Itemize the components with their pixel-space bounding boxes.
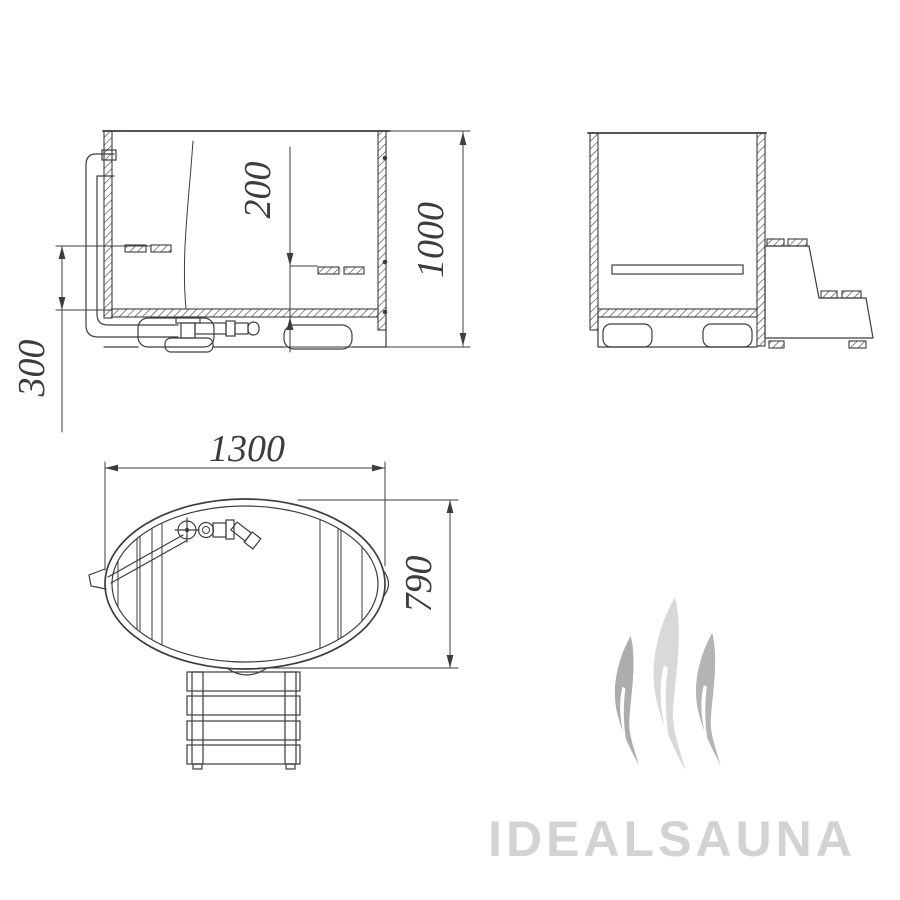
fastener-dot <box>383 156 388 161</box>
base-skirt <box>104 317 386 349</box>
right-wall-section <box>378 131 386 330</box>
dim-seat-height: 300 <box>11 246 150 432</box>
tub-outer-rim <box>105 499 385 669</box>
dimension-label-1000: 1000 <box>410 202 452 278</box>
faucet-assembly <box>108 518 261 583</box>
bench-slats <box>118 500 362 668</box>
dim-seat-depth: 200 <box>237 147 317 352</box>
steps-profile <box>765 239 873 348</box>
dim-overall-width: 790 <box>258 500 458 668</box>
dimension-label-790: 790 <box>398 556 440 613</box>
seat-bracket <box>318 267 339 274</box>
bench-bar <box>612 265 743 274</box>
seat-bracket <box>344 267 364 274</box>
seat-bracket <box>151 245 171 252</box>
sauna-tub-drawing: 300 200 1000 <box>0 0 900 900</box>
brand-text: IDEALSAUNA <box>488 811 856 867</box>
base-skirt <box>598 317 757 347</box>
plan-view <box>89 499 389 769</box>
fastener-dot <box>383 260 388 265</box>
flame-icon-middle <box>654 597 686 771</box>
flame-icon-left <box>615 636 639 765</box>
end-view <box>588 133 873 348</box>
watermark: IDEALSAUNA <box>488 597 856 867</box>
floor-section <box>598 309 757 317</box>
fastener-dot <box>383 310 388 315</box>
dimension-label-200: 200 <box>237 162 279 219</box>
steps-plan <box>187 672 300 769</box>
technical-drawing-page: 300 200 1000 <box>0 0 900 900</box>
floor-section <box>112 309 378 317</box>
overflow-outlet <box>89 569 106 589</box>
dimension-label-1300: 1300 <box>209 428 285 470</box>
left-wall-section <box>104 131 112 318</box>
left-wall-section <box>590 133 598 330</box>
drain-cable-line <box>184 141 193 309</box>
right-wall-section <box>757 133 765 346</box>
flame-icon-right <box>696 633 721 765</box>
dimension-label-300: 300 <box>11 340 53 398</box>
